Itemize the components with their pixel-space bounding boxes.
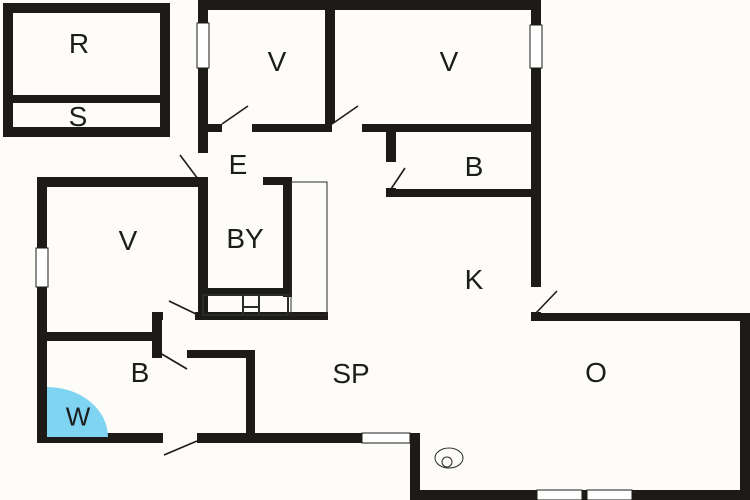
door-opening [197, 153, 209, 177]
floor-plan: RSVVBEBYVKBWSPO [0, 0, 750, 500]
floor-plan-canvas: RSVVBEBYVKBWSPO [0, 0, 750, 500]
window [587, 490, 632, 500]
wall [37, 177, 47, 443]
door-opening [222, 123, 252, 133]
room-label-v-top-right: V [440, 46, 459, 77]
wall [198, 0, 541, 10]
room-label-e: E [229, 149, 248, 180]
window [537, 490, 582, 500]
wall [740, 313, 750, 500]
door-opening [332, 123, 362, 133]
room-label-s: S [69, 101, 88, 132]
room-label-r: R [69, 28, 89, 59]
window [36, 248, 48, 287]
wall [160, 3, 170, 137]
room-label-v-left: V [119, 225, 138, 256]
wall [386, 189, 541, 197]
window [530, 25, 542, 68]
wall [531, 313, 750, 321]
room-label-by: BY [226, 223, 264, 254]
door-opening [162, 349, 187, 359]
wall [3, 3, 170, 13]
wall [325, 10, 335, 127]
background [0, 0, 750, 500]
room-label-b-left: B [131, 357, 150, 388]
wall [3, 3, 13, 137]
wall [37, 177, 198, 187]
wall [410, 433, 420, 495]
room-label-b-top-right: B [465, 151, 484, 182]
room-label-k: K [465, 264, 484, 295]
wall [246, 350, 255, 441]
wall [37, 332, 152, 341]
door-opening [163, 311, 195, 321]
room-label-w: W [66, 401, 91, 431]
window [197, 23, 209, 68]
room-label-o: O [585, 357, 607, 388]
room-label-sp: SP [332, 358, 369, 389]
door-opening [163, 432, 197, 444]
room-label-v-top-left: V [268, 46, 287, 77]
window [362, 433, 410, 443]
